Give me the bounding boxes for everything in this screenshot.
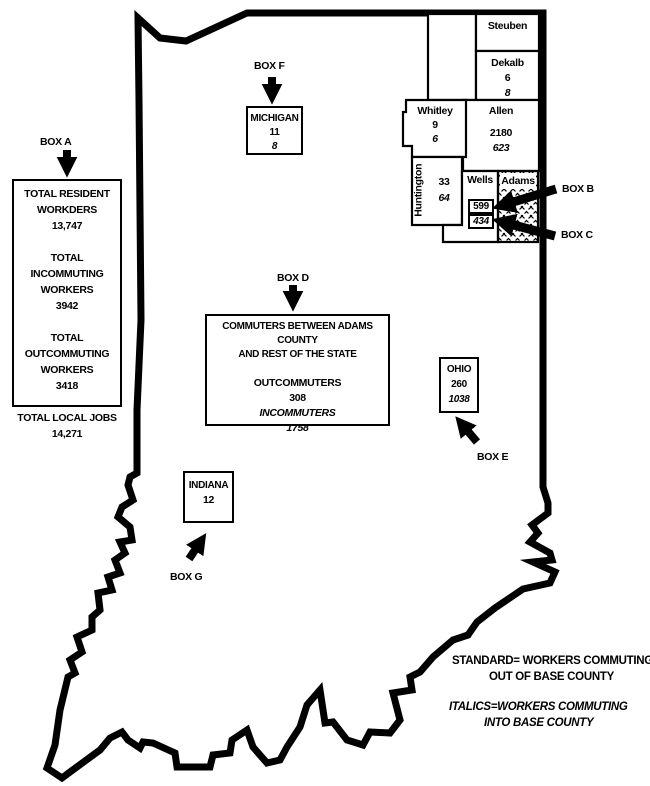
- box-a-label: BOX A: [40, 136, 71, 149]
- box-d-panel: COMMUTERS BETWEEN ADAMS COUNTY AND REST …: [205, 314, 390, 426]
- box-a-line: WORKERS: [14, 282, 120, 298]
- box-g-label: BOX G: [170, 571, 202, 584]
- ohio-name: OHIO: [441, 362, 477, 377]
- dekalb-incommuters: 8: [476, 86, 539, 101]
- ohio-outcommuters: 260: [441, 377, 477, 392]
- michigan-incommuters: 8: [248, 140, 301, 154]
- box-e-arrow: [466, 429, 477, 442]
- county-block-dekalb: Dekalb 6 8: [476, 56, 539, 101]
- box-a-line: 3418: [14, 378, 120, 394]
- box-a-line: WORKDERS: [14, 202, 120, 218]
- huntington-outcommuters: 33: [426, 174, 462, 190]
- wells-incommuters-box: 434: [468, 214, 494, 229]
- box-a-line: [14, 234, 120, 250]
- box-d-title-line1: COMMUTERS BETWEEN ADAMS COUNTY: [207, 320, 388, 348]
- box-d-incommuters-value: 1758: [207, 421, 388, 436]
- box-a-panel: TOTAL RESIDENT WORKDERS 13,747 TOTAL INC…: [12, 179, 122, 407]
- indiana-name: INDIANA: [185, 478, 232, 493]
- county-shape-unlabeled-ne: [428, 14, 476, 100]
- whitley-incommuters: 6: [404, 132, 466, 146]
- box-c-label: BOX C: [561, 229, 593, 242]
- county-block-whitley: Whitley 9 6: [404, 104, 466, 146]
- box-a-line: TOTAL LOCAL JOBS: [14, 410, 120, 426]
- county-block-huntington-values: 33 64: [426, 174, 462, 206]
- county-block-allen: Allen 2180 623: [463, 104, 539, 156]
- michigan-outcommuters: 11: [248, 126, 301, 140]
- county-label-allen: Allen: [463, 104, 539, 119]
- box-a-line: [14, 314, 120, 330]
- ohio-incommuters: 1038: [441, 392, 477, 407]
- legend-italics-line2: INTO BASE COUNTY: [484, 717, 593, 731]
- ohio-box: OHIO 260 1038: [439, 357, 479, 413]
- box-b-label: BOX B: [562, 183, 594, 196]
- box-d-title-line2: AND REST OF THE STATE: [207, 348, 388, 362]
- box-d-incommuters-label: INCOMMUTERS: [207, 406, 388, 421]
- allen-incommuters: 623: [463, 141, 539, 156]
- box-a-line: 13,747: [14, 218, 120, 234]
- box-e-label: BOX E: [477, 451, 508, 464]
- box-a-line: 3942: [14, 298, 120, 314]
- box-d-outcommuters-label: OUTCOMMUTERS: [207, 376, 388, 391]
- county-label-wells: Wells: [462, 174, 498, 187]
- box-d-outcommuters-value: 308: [207, 391, 388, 406]
- dekalb-outcommuters: 6: [476, 71, 539, 86]
- legend-standard-line1: STANDARD= WORKERS COMMUTING: [452, 655, 650, 669]
- box-f-label: BOX F: [254, 60, 285, 73]
- county-label-steuben: Steuben: [476, 20, 539, 33]
- legend-italics-line1: ITALICS=WORKERS COMMUTING: [449, 701, 628, 715]
- box-a-line: [14, 394, 120, 410]
- box-a-line: TOTAL RESIDENT: [14, 186, 120, 202]
- county-label-huntington: Huntington: [413, 156, 426, 224]
- allen-outcommuters: 2180: [463, 126, 539, 141]
- indiana-outcommuters: 12: [185, 493, 232, 508]
- huntington-incommuters: 64: [426, 190, 462, 206]
- michigan-name: MICHIGAN: [248, 112, 301, 126]
- box-g-arrow: [189, 547, 197, 559]
- legend-standard-line2: OUT OF BASE COUNTY: [489, 671, 614, 685]
- box-a-line: 14,271: [14, 426, 120, 442]
- box-a-line: WORKERS: [14, 362, 120, 378]
- commuting-map-figure: BOX A BOX F BOX D BOX B BOX C BOX E BOX …: [0, 0, 650, 786]
- county-label-dekalb: Dekalb: [476, 56, 539, 71]
- county-label-whitley: Whitley: [404, 104, 466, 118]
- box-a-line: TOTAL OUTCOMMUTING: [14, 330, 120, 362]
- indiana-box: INDIANA 12: [183, 471, 234, 523]
- whitley-outcommuters: 9: [404, 118, 466, 132]
- michigan-box: MICHIGAN 11 8: [246, 106, 303, 155]
- county-label-adams: Adams: [498, 175, 538, 188]
- box-d-label: BOX D: [277, 272, 309, 285]
- wells-outcommuters-box: 599: [468, 199, 494, 214]
- box-a-line: TOTAL INCOMMUTING: [14, 250, 120, 282]
